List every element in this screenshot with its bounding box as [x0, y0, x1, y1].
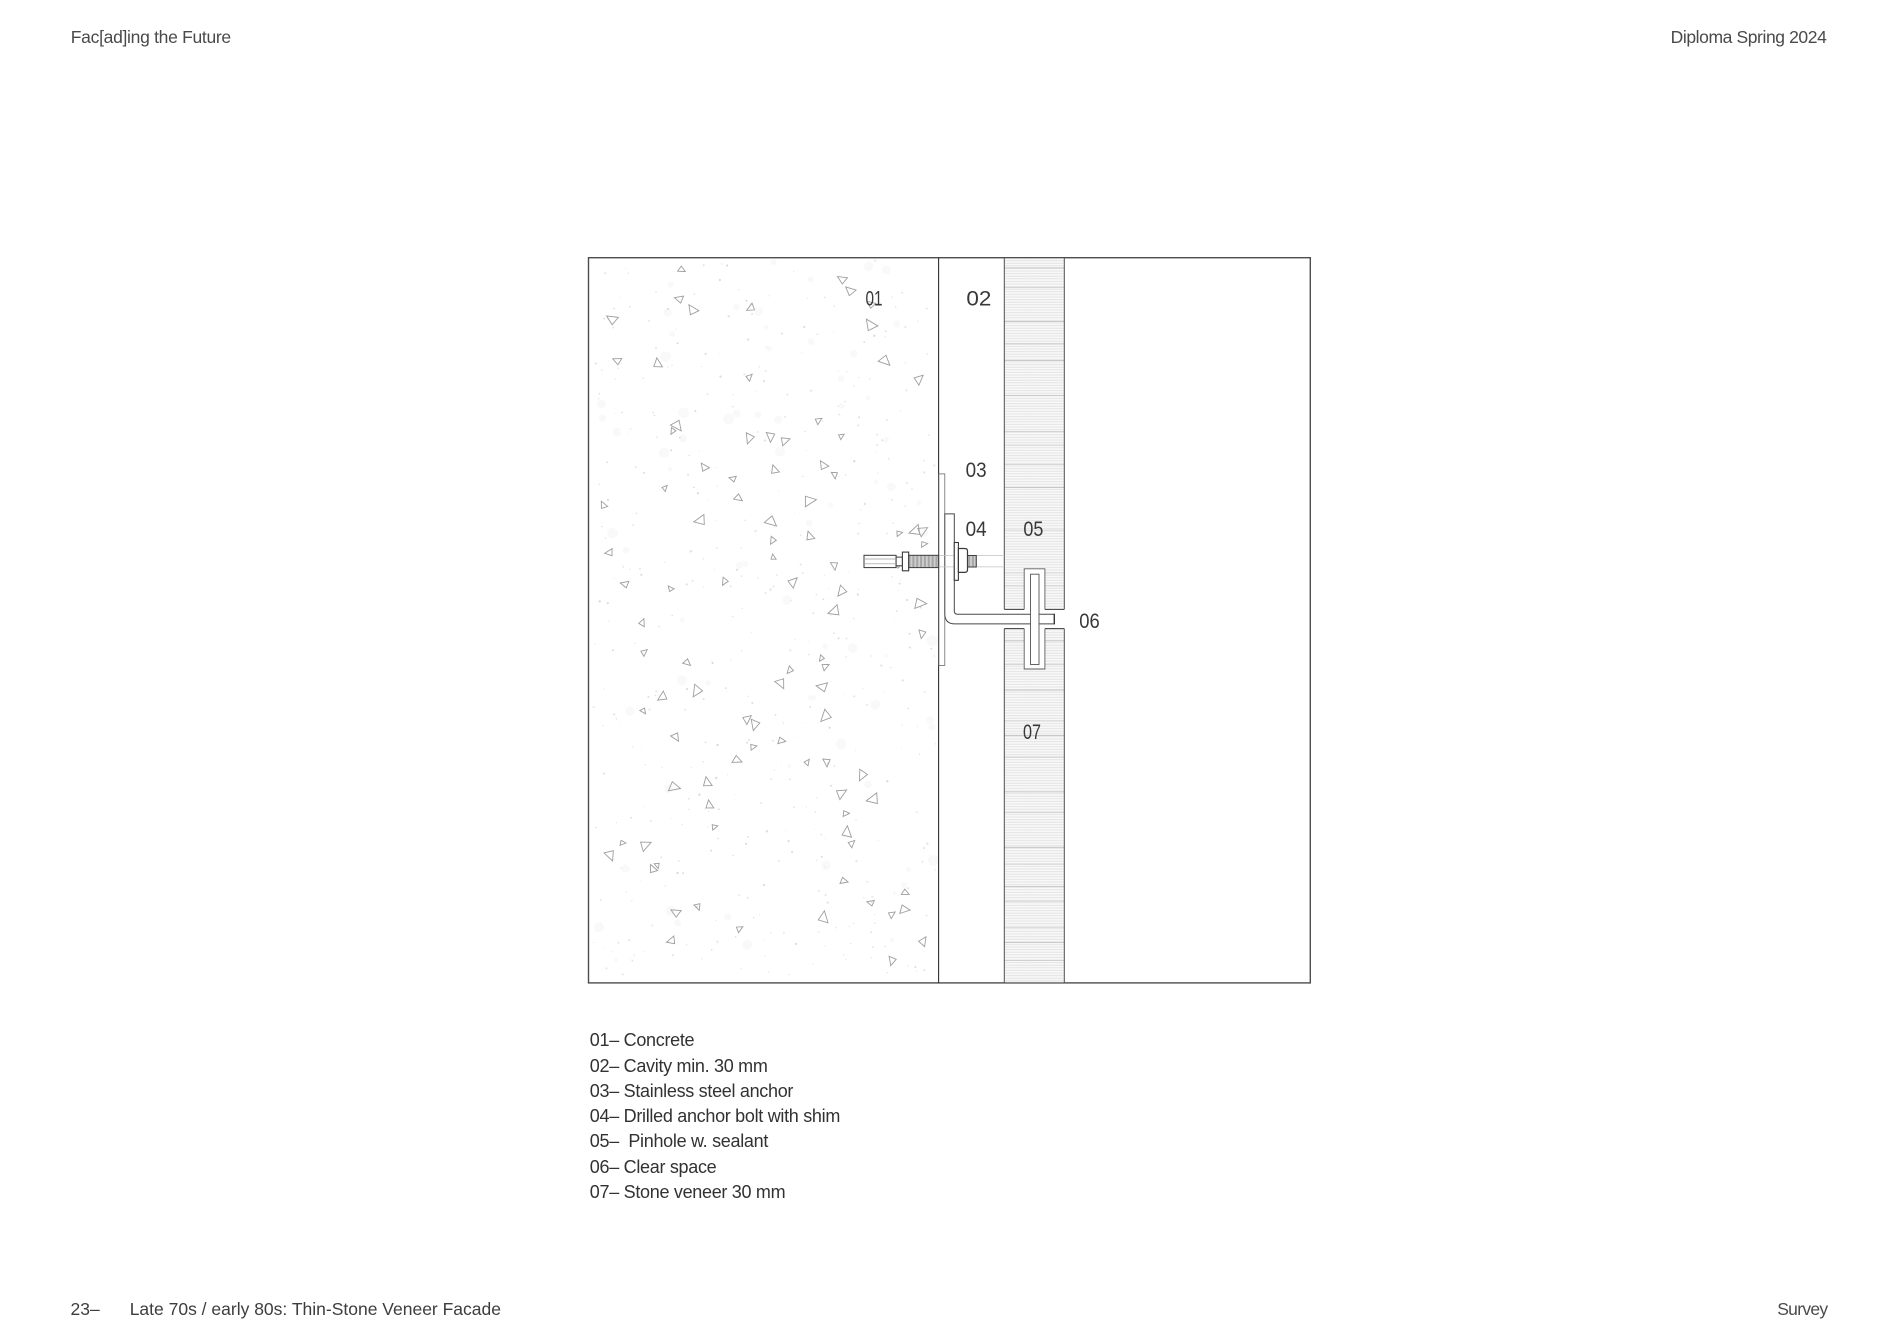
svg-text:03: 03 [966, 458, 987, 482]
svg-text:05: 05 [1023, 517, 1043, 541]
svg-text:01: 01 [866, 287, 883, 311]
svg-text:06: 06 [1079, 609, 1100, 633]
svg-text:02: 02 [966, 287, 991, 311]
svg-text:07: 07 [1023, 720, 1041, 744]
svg-text:04: 04 [966, 517, 987, 541]
